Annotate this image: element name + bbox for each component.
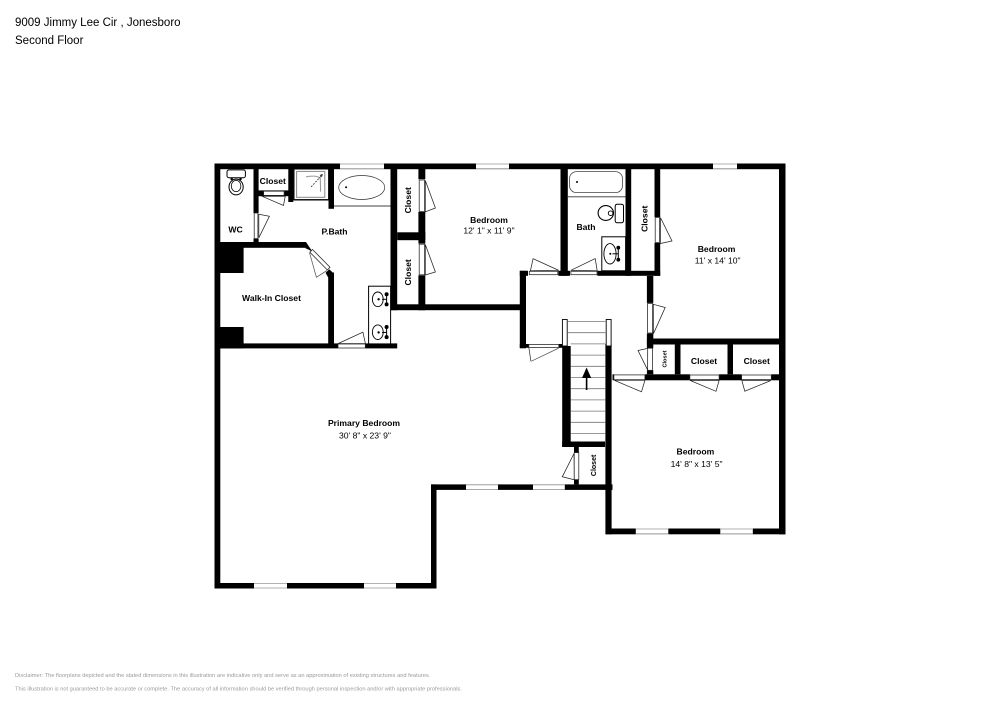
svg-text:Closet: Closet <box>744 356 770 366</box>
svg-text:Closet: Closet <box>260 176 286 186</box>
svg-text:Closet: Closet <box>591 454 598 476</box>
svg-text:Closet: Closet <box>663 350 669 367</box>
svg-text:11' x 14' 10": 11' x 14' 10" <box>695 256 741 266</box>
svg-text:9009 Jimmy Lee Cir , Jonesboro: 9009 Jimmy Lee Cir , Jonesboro <box>15 17 181 29</box>
svg-text:Closet: Closet <box>403 259 413 285</box>
svg-text:12' 1" x 11' 9": 12' 1" x 11' 9" <box>463 226 514 236</box>
svg-text:Closet: Closet <box>691 356 717 366</box>
svg-text:14' 8" x 13' 5": 14' 8" x 13' 5" <box>671 459 723 469</box>
svg-text:Bath: Bath <box>576 222 595 232</box>
svg-text:Primary Bedroom: Primary Bedroom <box>328 418 400 428</box>
svg-text:Closet: Closet <box>403 187 413 213</box>
svg-text:WC: WC <box>228 225 242 235</box>
svg-text:Closet: Closet <box>639 206 649 232</box>
svg-text:This illustration is not guara: This illustration is not guaranteed to b… <box>15 687 462 693</box>
svg-text:Second Floor: Second Floor <box>15 35 84 47</box>
svg-text:Bedroom: Bedroom <box>698 244 736 254</box>
svg-text:Walk-In Closet: Walk-In Closet <box>242 293 301 303</box>
svg-text:P.Bath: P.Bath <box>321 227 347 237</box>
svg-text:Bedroom: Bedroom <box>470 215 508 225</box>
svg-text:30' 8" x 23' 9": 30' 8" x 23' 9" <box>339 431 391 441</box>
svg-text:Disclaimer: The floorplans dep: Disclaimer: The floorplans depicted and … <box>15 673 431 679</box>
svg-text:Bedroom: Bedroom <box>677 447 715 457</box>
